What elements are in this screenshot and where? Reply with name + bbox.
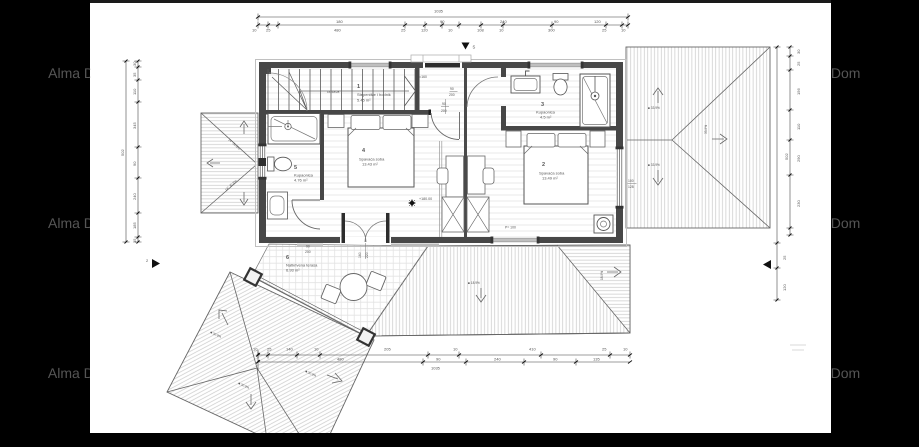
- svg-text:1035: 1035: [434, 9, 444, 14]
- svg-text:185: 185: [132, 222, 137, 229]
- svg-text:345: 345: [132, 122, 137, 129]
- svg-text:10: 10: [448, 28, 453, 33]
- svg-text:90: 90: [553, 357, 558, 362]
- svg-text:13.43 m²: 13.43 m²: [362, 162, 378, 167]
- svg-text:25: 25: [796, 61, 801, 66]
- svg-text:10: 10: [621, 28, 626, 33]
- svg-text:205: 205: [384, 347, 391, 352]
- svg-text:1: 1: [357, 84, 360, 90]
- svg-text:120: 120: [421, 28, 428, 33]
- svg-text:5.45 m²: 5.45 m²: [357, 98, 371, 103]
- svg-text:120: 120: [594, 19, 601, 24]
- svg-text:128: 128: [628, 185, 634, 189]
- svg-text:■ 18.9%: ■ 18.9%: [468, 281, 480, 285]
- svg-text:10: 10: [253, 347, 258, 352]
- svg-text:108: 108: [477, 28, 484, 33]
- svg-text:35: 35: [132, 238, 137, 243]
- svg-text:110: 110: [132, 88, 137, 95]
- svg-text:180: 180: [336, 19, 343, 24]
- svg-text:35: 35: [132, 72, 137, 77]
- svg-text:10: 10: [314, 347, 319, 352]
- svg-text:25: 25: [602, 28, 607, 33]
- svg-text:90: 90: [132, 161, 137, 166]
- svg-text:135: 135: [593, 357, 600, 362]
- svg-text:220: 220: [365, 252, 369, 258]
- svg-text:90: 90: [554, 19, 559, 24]
- svg-text:90: 90: [440, 19, 445, 24]
- svg-text:6.93 m²: 6.93 m²: [286, 268, 300, 273]
- svg-text:502: 502: [120, 149, 125, 156]
- svg-text:10: 10: [623, 347, 628, 352]
- svg-text:10: 10: [252, 28, 257, 33]
- svg-text:30: 30: [796, 49, 801, 54]
- svg-text:30: 30: [132, 61, 137, 66]
- svg-text:4.5 m²: 4.5 m²: [540, 115, 552, 120]
- svg-text:5: 5: [294, 165, 297, 171]
- svg-text:480: 480: [337, 357, 344, 362]
- svg-text:120: 120: [782, 284, 787, 291]
- svg-text:502: 502: [784, 153, 789, 160]
- svg-text:18.9%: 18.9%: [600, 271, 604, 280]
- svg-text:25: 25: [782, 255, 787, 260]
- svg-text:240: 240: [132, 193, 137, 200]
- svg-text:10: 10: [453, 347, 458, 352]
- svg-text:S: S: [473, 45, 476, 50]
- svg-text:■ 33.9%: ■ 33.9%: [648, 106, 660, 110]
- svg-text:P= 100: P= 100: [505, 226, 516, 230]
- svg-text:290: 290: [796, 155, 801, 162]
- svg-text:13.49 m²: 13.49 m²: [542, 176, 558, 181]
- svg-text:90: 90: [306, 245, 310, 249]
- svg-text:16x18/28: 16x18/28: [327, 90, 340, 94]
- svg-text:33.9%: 33.9%: [704, 125, 708, 134]
- svg-text:Stepenište i hodnik: Stepenište i hodnik: [357, 92, 391, 97]
- svg-text:■ 33.9%: ■ 33.9%: [648, 163, 660, 167]
- svg-text:10: 10: [499, 28, 504, 33]
- svg-text:110: 110: [796, 123, 801, 130]
- svg-text:25: 25: [267, 347, 272, 352]
- svg-text:200: 200: [449, 93, 455, 97]
- svg-text:240: 240: [494, 357, 501, 362]
- svg-text:480: 480: [334, 28, 341, 33]
- svg-text:90: 90: [450, 87, 454, 91]
- svg-text:100: 100: [628, 179, 634, 183]
- svg-text:6: 6: [286, 255, 289, 261]
- svg-text:156: 156: [796, 88, 801, 95]
- svg-text:240: 240: [500, 19, 507, 24]
- svg-text:200: 200: [305, 250, 311, 254]
- svg-text:160: 160: [358, 252, 362, 258]
- svg-text:200: 200: [441, 109, 447, 113]
- svg-text:25: 25: [602, 347, 607, 352]
- svg-text:230: 230: [796, 200, 801, 207]
- svg-text:4.76 m²: 4.76 m²: [294, 178, 308, 183]
- svg-text:25: 25: [401, 28, 406, 33]
- svg-text:2: 2: [542, 162, 545, 168]
- svg-text:1035: 1035: [431, 366, 441, 371]
- svg-text:300: 300: [548, 28, 555, 33]
- svg-text:25: 25: [266, 28, 271, 33]
- svg-text:+180.00: +180.00: [419, 197, 432, 201]
- svg-text:90: 90: [436, 357, 441, 362]
- svg-text:3: 3: [541, 102, 544, 108]
- svg-text:140: 140: [286, 347, 293, 352]
- svg-text:410: 410: [529, 347, 536, 352]
